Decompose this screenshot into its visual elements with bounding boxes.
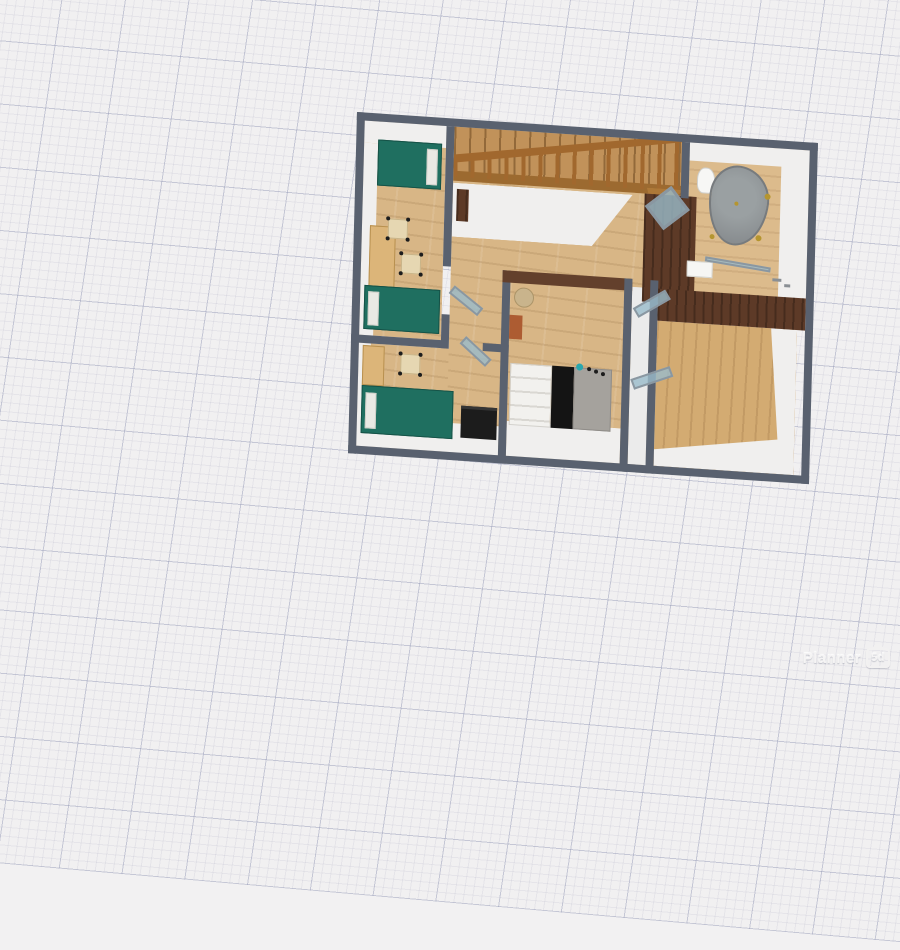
bed-pillow (367, 291, 379, 326)
bed[interactable] (361, 385, 454, 439)
bed-pillow (426, 149, 438, 186)
wall-decor-dot (594, 370, 598, 374)
wall-decor-dot (601, 372, 605, 376)
chair[interactable] (401, 253, 421, 274)
bed[interactable] (363, 285, 440, 334)
chair[interactable] (400, 353, 420, 374)
gold-faucet (755, 235, 761, 241)
floor-plan[interactable] (348, 112, 818, 484)
black-cabinet[interactable] (460, 406, 497, 440)
bed[interactable] (377, 139, 442, 189)
wall-decor-dot (587, 367, 591, 371)
planner5d-canvas-screenshot: { "app": { "name": "Planner 5D", "waterm… (0, 0, 900, 675)
wall-interior[interactable] (681, 142, 690, 199)
faucet-mark (784, 284, 790, 287)
towel-rail (772, 278, 781, 282)
planner5d-badge-icon: 5d (866, 648, 890, 668)
stair-newel-chest[interactable] (456, 189, 469, 222)
sofa-bed-black-section (551, 366, 575, 430)
gold-drain (734, 202, 738, 206)
orange-wall-art[interactable] (509, 315, 523, 340)
sofa-bed-gray-section (573, 367, 613, 432)
watermark-text: Planner (803, 650, 862, 667)
gold-faucet (764, 194, 770, 200)
bed-pillow (365, 392, 377, 429)
wall-face (778, 149, 810, 301)
planner5d-watermark: Planner 5d (803, 648, 890, 668)
gold-faucet (709, 234, 714, 239)
sink-cabinet[interactable] (687, 260, 713, 278)
wardrobe[interactable] (362, 345, 385, 386)
chair[interactable] (388, 218, 408, 239)
wall-decor-dot (576, 363, 583, 370)
sofa-bed-white-section (509, 363, 553, 428)
